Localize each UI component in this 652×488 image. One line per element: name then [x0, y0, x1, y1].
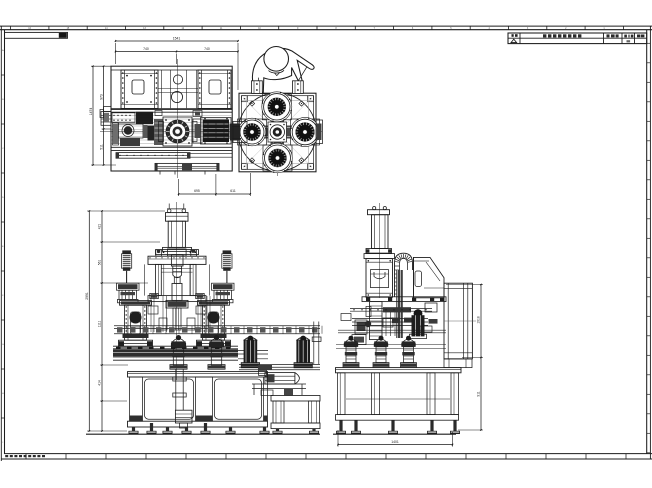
svg-text:1111: 1111 [98, 321, 102, 328]
svg-text:421: 421 [98, 224, 102, 230]
svg-text:695: 695 [194, 189, 200, 193]
svg-text:561: 561 [98, 260, 102, 266]
svg-text:973: 973 [99, 94, 103, 100]
svg-text:2991: 2991 [85, 292, 89, 300]
svg-text:1541: 1541 [173, 36, 181, 40]
svg-text:611: 611 [230, 189, 236, 193]
svg-text:G: G [2, 344, 4, 346]
svg-text:511: 511 [99, 144, 103, 150]
svg-text:1401: 1401 [391, 440, 399, 444]
svg-text:740: 740 [204, 47, 210, 51]
svg-text:911: 911 [477, 391, 481, 396]
svg-text:414: 414 [98, 380, 102, 386]
svg-text:1474: 1474 [89, 108, 93, 116]
svg-text:1018: 1018 [477, 316, 481, 324]
svg-text:740: 740 [143, 47, 149, 51]
